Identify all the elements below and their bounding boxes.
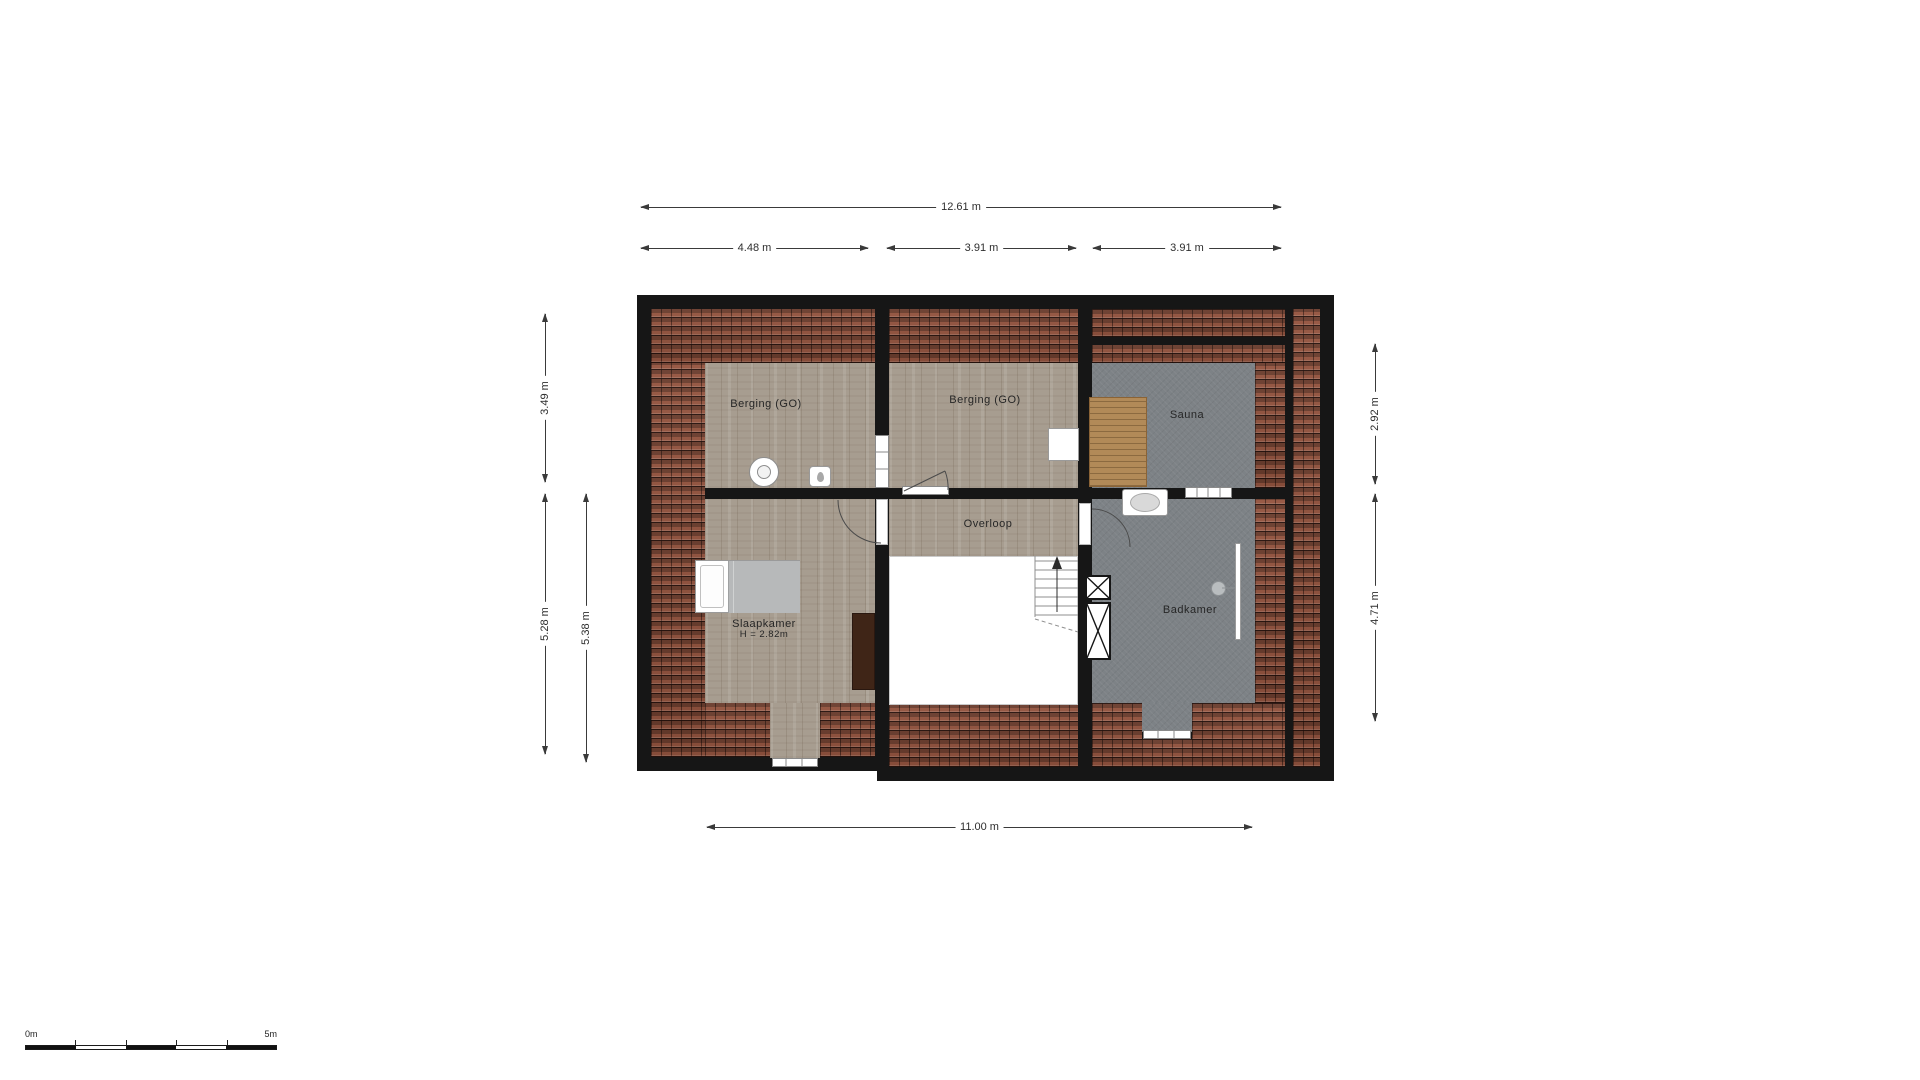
- room-berging1-floor: [705, 363, 875, 488]
- slaapkamer-ceiling-height: H = 2.82m: [732, 629, 796, 640]
- arrow-down-icon: [1372, 476, 1378, 485]
- arrow-left-icon: [1092, 245, 1101, 251]
- dim-label: 3.91 m: [960, 242, 1004, 254]
- bed-blanket: [728, 561, 800, 613]
- scale-bar-segments: [25, 1045, 277, 1050]
- room-label-berging2: Berging (GO): [949, 394, 1020, 406]
- roof-tiles-top-middle: [889, 309, 1078, 363]
- floorplan-page: Berging (GO) Berging (GO) Sauna Overloop…: [0, 0, 1920, 1080]
- dim-label: 3.91 m: [1165, 242, 1209, 254]
- arrow-right-icon: [1068, 245, 1077, 251]
- room-label-badkamer: Badkamer: [1163, 604, 1217, 616]
- roof-tiles-bottom-left-a: [705, 703, 770, 757]
- washbasin-icon: [1122, 489, 1168, 516]
- scale-max-label: 5m: [264, 1029, 277, 1039]
- roof-tiles-right-strip: [1293, 309, 1320, 767]
- dim-top-segment-3: 3.91 m: [1092, 241, 1282, 255]
- dim-left-lower: 5.28 m: [538, 493, 552, 755]
- roof-tiles-bottom-middle: [889, 705, 1078, 767]
- arrow-up-icon: [1372, 343, 1378, 352]
- roof-tiles-top-left: [651, 309, 875, 363]
- shaft-icon: [1085, 575, 1111, 600]
- arrow-up-icon: [583, 493, 589, 502]
- room-label-berging1: Berging (GO): [730, 398, 801, 410]
- arrow-down-icon: [1372, 713, 1378, 722]
- dim-left-upper: 3.49 m: [538, 313, 552, 483]
- arrow-up-icon: [542, 493, 548, 502]
- dim-label: 12.61 m: [936, 201, 986, 213]
- stairwell-void: [889, 556, 1078, 705]
- room-label-slaapkamer: Slaapkamer H = 2.82m: [732, 618, 796, 640]
- dim-label: 11.00 m: [955, 821, 1004, 833]
- slaapkamer-dormer-floor: [770, 703, 820, 758]
- arrow-left-icon: [886, 245, 895, 251]
- shower-head-icon: [1211, 581, 1226, 596]
- badkamer-dormer-floor: [1142, 703, 1192, 732]
- door-opening-slaapkamer: [876, 499, 888, 545]
- arrow-right-icon: [1273, 204, 1282, 210]
- bed-blanket-fold: [733, 561, 734, 613]
- dim-top-total: 12.61 m: [640, 200, 1282, 214]
- sauna-bench-icon: [1089, 397, 1147, 487]
- roof-tiles-bottom-left-b: [820, 703, 875, 757]
- window-sauna-badkamer: [1185, 487, 1232, 498]
- bed-pillow: [700, 565, 724, 608]
- roof-tiles-sauna-right: [1255, 363, 1285, 488]
- arrow-right-icon: [860, 245, 869, 251]
- room-label-sauna: Sauna: [1170, 409, 1204, 421]
- dim-label: 5.38 m: [580, 606, 592, 650]
- arrow-down-icon: [542, 746, 548, 755]
- bed-icon: [695, 560, 800, 613]
- roof-tiles-sauna-top: [1092, 345, 1285, 363]
- washbasin-bowl: [1130, 493, 1160, 512]
- dim-right-upper: 2.92 m: [1368, 343, 1382, 485]
- arrow-down-icon: [583, 754, 589, 763]
- arrow-right-icon: [1273, 245, 1282, 251]
- window-slaapkamer-dormer: [772, 758, 818, 767]
- dim-bottom-total: 11.00 m: [706, 820, 1253, 834]
- door-opening-badkamer: [1079, 503, 1091, 545]
- dim-right-lower: 4.71 m: [1368, 493, 1382, 722]
- roof-tiles-bottom-right-b: [1192, 703, 1285, 767]
- roof-tiles-top-right-outer: [1092, 309, 1285, 337]
- shower-screen-icon: [1235, 543, 1241, 640]
- roof-tiles-bottom-right-a: [1092, 703, 1142, 767]
- arrow-down-icon: [542, 474, 548, 483]
- arrow-up-icon: [542, 313, 548, 322]
- roof-tiles-under-dormer: [1142, 739, 1192, 767]
- room-badkamer-floor: [1092, 499, 1255, 703]
- room-berging2-floor: [889, 363, 1078, 488]
- outer-wall-bottom-right-step: [877, 767, 1334, 781]
- dim-label: 5.28 m: [539, 602, 551, 646]
- dim-label: 4.71 m: [1369, 586, 1381, 630]
- dim-top-segment-2: 3.91 m: [886, 241, 1077, 255]
- shaft-icon: [1085, 602, 1111, 660]
- scale-bar: 0m 5m: [25, 1029, 277, 1051]
- window-badkamer-dormer: [1143, 730, 1191, 739]
- arrow-left-icon: [640, 204, 649, 210]
- wardrobe-icon: [852, 613, 875, 690]
- arrow-up-icon: [1372, 493, 1378, 502]
- roof-tiles-badkamer-right: [1255, 499, 1285, 703]
- window-between-bergings: [875, 435, 889, 488]
- dim-label: 3.49 m: [539, 376, 551, 420]
- dim-left-lower-inner: 5.38 m: [579, 493, 593, 763]
- dim-label: 4.48 m: [733, 242, 777, 254]
- dim-label: 2.92 m: [1369, 392, 1381, 436]
- dim-top-segment-1: 4.48 m: [640, 241, 869, 255]
- room-label-overloop: Overloop: [964, 518, 1013, 530]
- boiler-icon: [809, 466, 831, 487]
- arrow-left-icon: [640, 245, 649, 251]
- arrow-right-icon: [1244, 824, 1253, 830]
- scale-min-label: 0m: [25, 1029, 38, 1039]
- arrow-left-icon: [706, 824, 715, 830]
- dresser-icon: [1048, 428, 1079, 461]
- door-threshold-berging2: [902, 486, 949, 495]
- washing-machine-drum-icon: [757, 465, 771, 479]
- flame-icon: [817, 472, 824, 482]
